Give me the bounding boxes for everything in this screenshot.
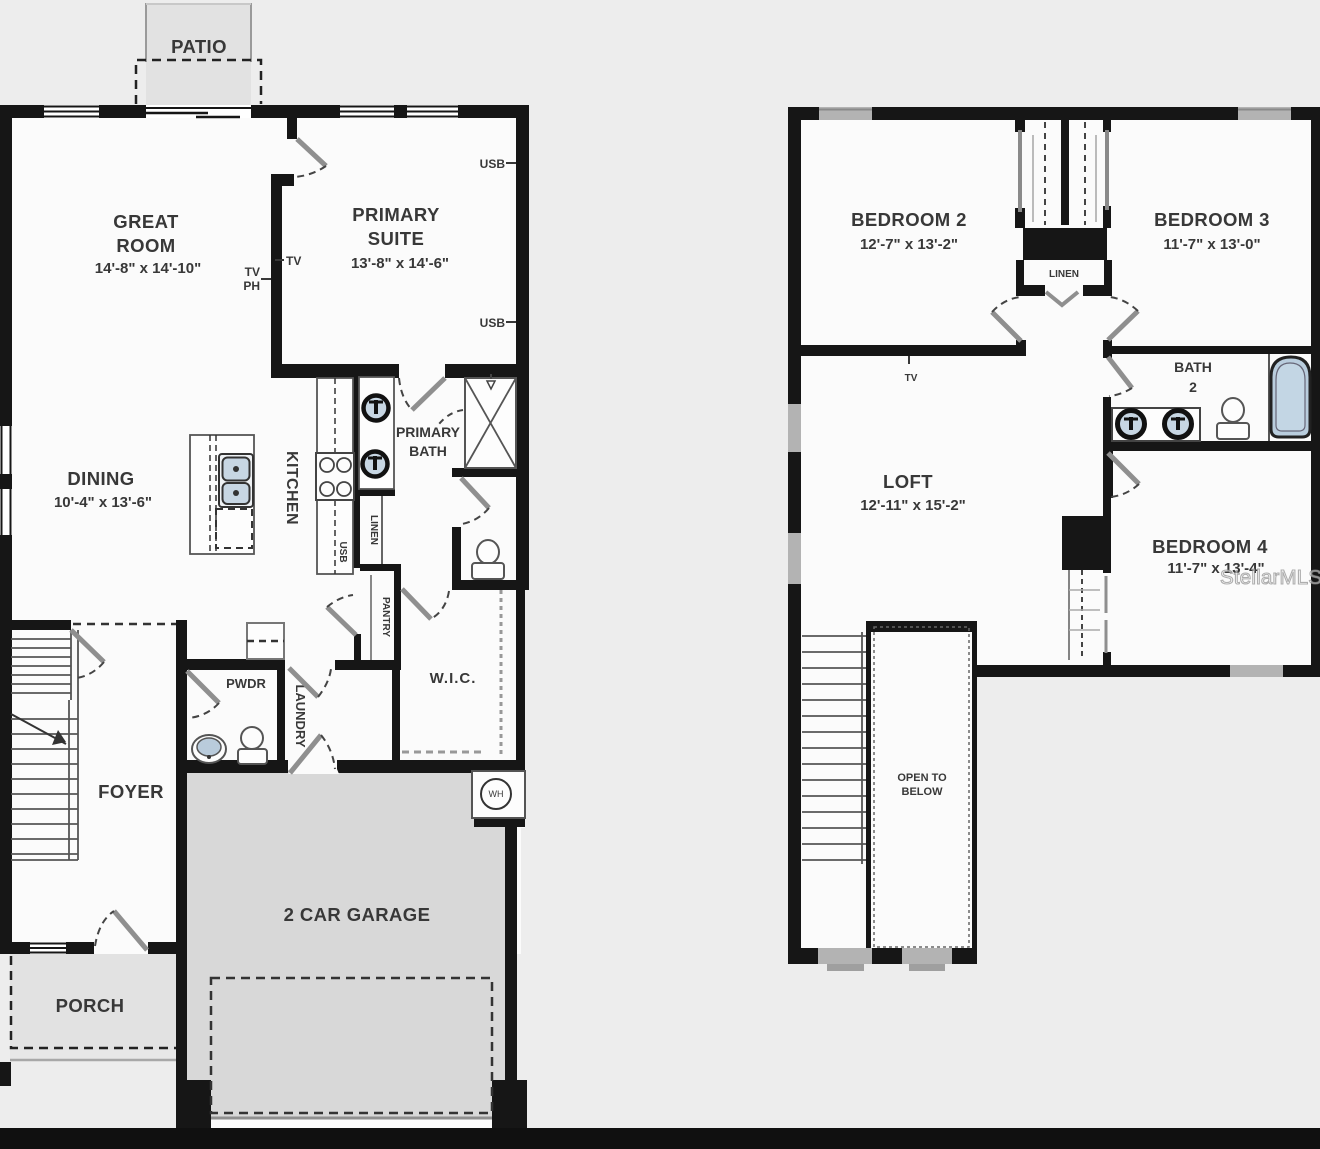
svg-text:14'-8" x 14'-10": 14'-8" x 14'-10": [95, 260, 201, 277]
svg-text:TV: TV: [245, 265, 260, 279]
svg-text:12'-11" x 15'-2": 12'-11" x 15'-2": [860, 497, 966, 514]
svg-text:SUITE: SUITE: [368, 228, 424, 249]
svg-text:PATIO: PATIO: [171, 36, 227, 57]
svg-text:W.I.C.: W.I.C.: [430, 670, 477, 687]
svg-text:LOFT: LOFT: [883, 471, 933, 492]
svg-text:PWDR: PWDR: [226, 676, 266, 691]
svg-text:LINEN: LINEN: [1049, 269, 1079, 280]
svg-text:TV: TV: [905, 373, 918, 384]
svg-text:DINING: DINING: [67, 468, 134, 489]
svg-text:BATH: BATH: [409, 443, 447, 459]
svg-text:USB: USB: [480, 316, 506, 330]
svg-text:LAUNDRY: LAUNDRY: [293, 684, 308, 747]
svg-text:PRIMARY: PRIMARY: [352, 204, 440, 225]
svg-text:2 CAR GARAGE: 2 CAR GARAGE: [284, 904, 431, 925]
svg-text:GREAT: GREAT: [113, 211, 179, 232]
svg-text:TV: TV: [286, 254, 301, 268]
svg-text:12'-7" x 13'-2": 12'-7" x 13'-2": [860, 236, 958, 253]
svg-text:PANTRY: PANTRY: [380, 597, 391, 637]
svg-text:StellarMLS: StellarMLS: [1220, 566, 1320, 589]
svg-text:PRIMARY: PRIMARY: [396, 424, 461, 440]
svg-text:LINEN: LINEN: [368, 515, 379, 545]
svg-text:PORCH: PORCH: [56, 995, 125, 1016]
svg-text:BEDROOM 2: BEDROOM 2: [851, 209, 967, 230]
svg-text:USB: USB: [337, 541, 348, 562]
svg-text:KITCHEN: KITCHEN: [283, 451, 300, 525]
svg-text:PH: PH: [243, 279, 260, 293]
svg-text:11'-7" x 13'-0": 11'-7" x 13'-0": [1163, 236, 1260, 253]
svg-text:FOYER: FOYER: [98, 781, 164, 802]
svg-text:BATH: BATH: [1174, 359, 1212, 375]
svg-text:OPEN TO: OPEN TO: [897, 772, 947, 784]
svg-text:13'-8" x 14'-6": 13'-8" x 14'-6": [351, 255, 449, 272]
svg-text:2: 2: [1189, 379, 1197, 395]
svg-text:BELOW: BELOW: [902, 786, 944, 798]
svg-text:ROOM: ROOM: [116, 235, 175, 256]
svg-text:USB: USB: [480, 157, 506, 171]
svg-text:WH: WH: [489, 789, 504, 799]
svg-text:BEDROOM 4: BEDROOM 4: [1152, 536, 1268, 557]
svg-text:10'-4" x 13'-6": 10'-4" x 13'-6": [54, 494, 152, 511]
svg-text:BEDROOM 3: BEDROOM 3: [1154, 209, 1270, 230]
